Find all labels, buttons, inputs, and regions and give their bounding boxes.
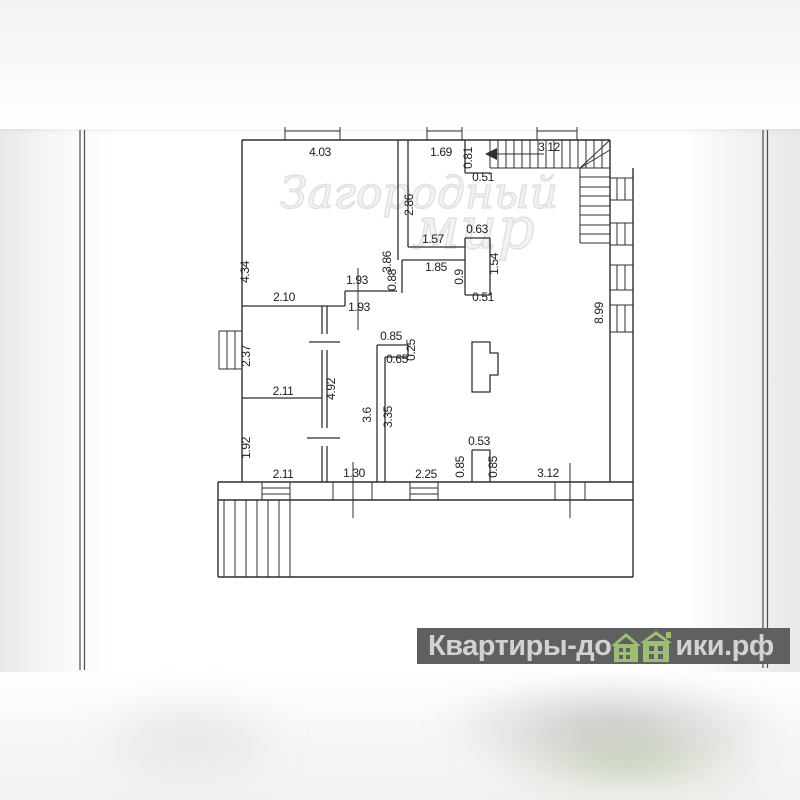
- dimension-label: 2.86: [402, 193, 416, 215]
- window-marks: [219, 127, 633, 369]
- dimension-label: 3.12: [537, 466, 559, 480]
- site-logo-text-left: Квартиры-до: [428, 632, 611, 661]
- dimension-label: 3.6: [360, 407, 374, 423]
- dimension-label: 0.85: [486, 455, 500, 477]
- dimension-label: 0.9: [452, 269, 466, 285]
- dimension-label: 4.92: [324, 377, 338, 399]
- dimension-label: 0.85: [453, 455, 467, 477]
- dimension-label: 2.11: [273, 467, 295, 481]
- dimension-label: 0.51: [472, 290, 494, 304]
- dimension-label: 1.54: [487, 252, 501, 274]
- dimension-label: 2.11: [273, 384, 295, 398]
- dimension-label: 1.93: [346, 273, 368, 287]
- stair-direction-arrow-icon: [485, 148, 497, 160]
- dimension-label: 0.81: [461, 146, 475, 168]
- dimension-label: 0.63: [466, 222, 488, 236]
- sheet-frame-lines: [80, 130, 768, 670]
- floor-plan-page: Загородный мир 4.03 1.69 3.12 0.51 1.57 …: [0, 0, 800, 800]
- floor-plan-svg: 4.03 1.69 3.12 0.51 1.57 0.63 1.85 0.51 …: [0, 0, 800, 800]
- dimension-label: 0.85: [380, 329, 402, 343]
- dimension-label: 8.99: [592, 301, 606, 323]
- site-logo: Квартиры-до ики.рф: [417, 628, 790, 664]
- dimension-labels: 4.03 1.69 3.12 0.51 1.57 0.63 1.85 0.51 …: [238, 140, 606, 481]
- openings-and-steps: [224, 268, 585, 577]
- houses-icon: [610, 630, 676, 663]
- staircase: [485, 140, 610, 243]
- dimension-label: 1.30: [343, 466, 365, 480]
- site-logo-text-right: ики.рф: [675, 632, 773, 661]
- dimension-label: 4.34: [238, 260, 252, 282]
- dimension-label: 3.12: [538, 140, 560, 154]
- dimension-label: 0.53: [468, 434, 490, 448]
- chimney-outline: [472, 342, 498, 392]
- dimension-label: 0.88: [385, 268, 399, 290]
- dimension-label: 1.93: [348, 300, 370, 314]
- dimension-label: 2.37: [239, 344, 253, 366]
- dimension-label: 1.85: [425, 260, 447, 274]
- dimension-label: 0.25: [404, 338, 418, 360]
- dimension-label: 2.25: [415, 467, 437, 481]
- dimension-label: 1.92: [239, 436, 253, 458]
- dimension-label: 4.03: [309, 145, 331, 159]
- dimension-label: 0.51: [472, 170, 494, 184]
- dimension-label: 2.10: [273, 290, 295, 304]
- dimension-label: 1.69: [430, 145, 452, 159]
- dimension-label: 3.35: [381, 405, 395, 427]
- dimension-label: 1.57: [422, 232, 444, 246]
- outer-walls: [218, 140, 633, 577]
